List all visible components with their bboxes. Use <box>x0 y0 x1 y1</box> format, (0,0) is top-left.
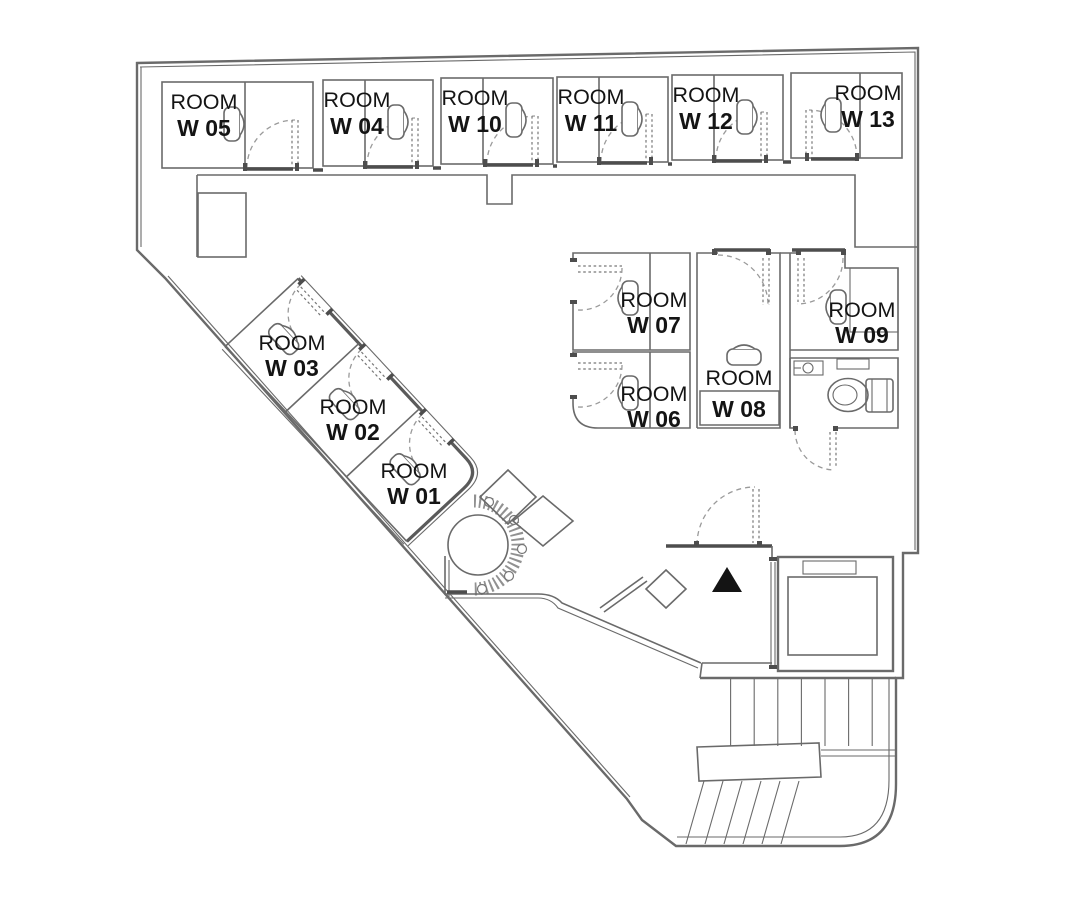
shaft-room <box>198 193 246 257</box>
sink-icon <box>737 100 757 134</box>
entrance-hall <box>666 487 772 678</box>
stair-handrail <box>821 750 895 756</box>
room-w03-number: W 03 <box>265 355 319 381</box>
room-w07-door-arc <box>578 268 622 310</box>
entrance-door-arc <box>697 487 755 545</box>
room-w04: ROOM W 04 <box>323 80 433 169</box>
room-w12-number: W 12 <box>679 108 733 134</box>
room-w09-number: W 09 <box>835 322 889 348</box>
room-w13-label: ROOM <box>835 81 902 105</box>
courtyard <box>448 470 686 612</box>
outline-double-diagonal <box>168 276 630 797</box>
room-w03-label: ROOM <box>259 331 326 355</box>
staircase <box>677 678 896 844</box>
corridor-wall-top <box>197 175 918 247</box>
floor-plan: ROOM W 05 ROOM W 04 ROOM W 10 <box>0 0 1083 897</box>
stair-upper-treads <box>731 679 873 746</box>
room-w01-number: W 01 <box>387 483 441 509</box>
corridor-walls <box>197 162 918 257</box>
elevator-cab <box>788 577 877 655</box>
room-w02-label: ROOM <box>320 395 387 419</box>
room-w11-number: W 11 <box>565 110 618 136</box>
room-w12-label: ROOM <box>673 83 740 107</box>
room-w05-door-track <box>292 120 298 166</box>
paver-diamond <box>646 570 686 608</box>
room-w09-door-track <box>798 258 804 302</box>
stair-inner-wall <box>677 679 889 837</box>
planter-flowers <box>478 498 527 594</box>
room-w08-door-arc <box>718 255 768 305</box>
room-w10-door-track <box>532 116 538 162</box>
elevator-door-panel <box>803 561 856 574</box>
room-w04-door-track <box>412 118 418 164</box>
w08-w09-corridor-wall <box>780 253 790 428</box>
rooms-middle-block: ROOM W 07 ROOM W 06 ROOM W 08 <box>570 249 898 470</box>
room-w01-label: ROOM <box>381 459 448 483</box>
room-w10-number: W 10 <box>448 111 502 137</box>
room-w06-label: ROOM <box>621 382 688 406</box>
shelf <box>837 359 869 369</box>
room-w08-label: ROOM <box>706 366 773 390</box>
room-w07-number: W 07 <box>627 312 681 338</box>
toilet-door-arc <box>795 430 835 470</box>
room-w10: ROOM W 10 <box>441 78 553 167</box>
room-w06: ROOM W 06 <box>570 352 690 432</box>
bench <box>600 577 647 612</box>
room-w07: ROOM W 07 <box>570 253 690 350</box>
room-w08-number: W 08 <box>712 396 766 422</box>
toilet-icon <box>828 379 893 413</box>
room-w05-number: W 05 <box>177 115 231 141</box>
entrance-marker-icon <box>712 567 742 592</box>
room-w04-number: W 04 <box>330 113 384 139</box>
room-w11: ROOM W 11 <box>557 77 668 165</box>
sink-icon <box>388 105 408 139</box>
outline-double-line <box>140 52 915 550</box>
room-w08-door-track <box>763 258 769 305</box>
corridor-inner-wall <box>445 556 701 663</box>
room-w05-door-arc <box>247 120 295 168</box>
room-w05: ROOM W 05 <box>162 82 313 171</box>
toilet-door-track <box>830 432 836 468</box>
room-w13: ROOM W 13 <box>791 73 902 161</box>
room-w07-label: ROOM <box>621 288 688 312</box>
room-w08: ROOM W 08 <box>697 249 780 428</box>
sink-icon <box>506 103 526 137</box>
planter-icon <box>448 515 508 575</box>
rooms-top-row: ROOM W 05 ROOM W 04 ROOM W 10 <box>162 73 902 171</box>
hall-walls <box>700 546 772 678</box>
stair-landing <box>697 743 821 781</box>
floor-plan-page: ROOM W 05 ROOM W 04 ROOM W 10 <box>0 0 1083 897</box>
room-w13-door-track <box>806 110 812 156</box>
room-w11-door-track <box>646 114 652 160</box>
elevator-door <box>771 562 775 666</box>
room-w10-label: ROOM <box>442 86 509 110</box>
room-w09-label: ROOM <box>829 298 896 322</box>
sink-icon <box>727 345 761 365</box>
elevator <box>769 557 893 671</box>
room-w13-number: W 13 <box>841 106 895 132</box>
stair-lower-treads <box>686 781 799 844</box>
room-w02-number: W 02 <box>326 419 380 445</box>
washbasin-icon <box>794 361 823 375</box>
room-w09: ROOM W 09 <box>790 249 898 350</box>
room-w12-door-track <box>761 112 767 158</box>
room-w07-door-track <box>578 266 622 272</box>
room-w06-door-track <box>578 363 622 369</box>
rooms-diagonal-block: ROOM W 03 ROOM W 02 ROOM W 01 <box>222 276 485 547</box>
room-w06-door-arc <box>578 365 622 407</box>
room-w04-label: ROOM <box>324 88 391 112</box>
toilet-room <box>790 358 898 470</box>
room-w11-label: ROOM <box>558 85 625 109</box>
entrance-door-track <box>753 489 759 543</box>
room-w06-number: W 06 <box>627 406 681 432</box>
sink-icon <box>622 102 642 136</box>
room-w12: ROOM W 12 <box>672 75 783 163</box>
room-w05-label: ROOM <box>171 90 238 114</box>
